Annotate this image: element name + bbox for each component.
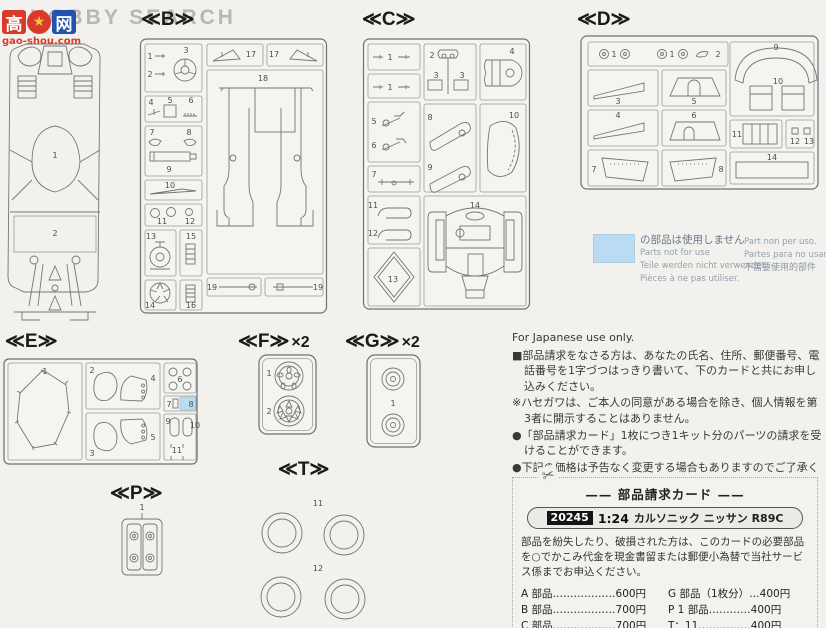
sprue-e-diagram: 1 2 4 3 5 6 7 8 9 10 11 <box>3 358 199 466</box>
legend-es: Partes para no usar. <box>744 249 826 262</box>
svg-text:19: 19 <box>207 283 217 292</box>
svg-text:6: 6 <box>188 96 193 105</box>
label-f-multiplier: ×2 <box>291 334 309 351</box>
section-label-g: ≪G≫×2 <box>345 330 420 353</box>
svg-text:12: 12 <box>185 217 195 226</box>
svg-text:1: 1 <box>52 151 57 160</box>
section-label-t: ≪T≫ <box>278 458 329 481</box>
svg-text:2: 2 <box>429 51 434 60</box>
svg-text:14: 14 <box>767 153 777 162</box>
svg-text:4: 4 <box>148 98 153 107</box>
svg-text:12: 12 <box>313 564 323 573</box>
sprue-g-diagram: 1 <box>366 354 422 449</box>
svg-text:1: 1 <box>139 503 144 512</box>
svg-text:13: 13 <box>388 275 398 284</box>
section-label-d: ≪D≫ <box>577 8 631 31</box>
notice-paragraph: ●「部品請求カード」1枚につき1キット分のパーツの請求を受けることができます。 <box>512 428 824 459</box>
instruction-sheet-page: HOBBY SEARCH 高 ★ 网 gao-shou.com ≪B≫ ≪C≫ … <box>0 0 826 628</box>
gaoshou-logo: 高 ★ 网 <box>2 10 76 34</box>
svg-text:7: 7 <box>149 128 154 137</box>
svg-text:7: 7 <box>371 170 376 179</box>
card-body-text: 部品を紛失したり、破損された方は、このカードの必要部品を○でかこみ代金を現金書留… <box>521 535 809 581</box>
section-label-c: ≪C≫ <box>362 8 416 31</box>
svg-text:4: 4 <box>615 111 620 120</box>
svg-text:7: 7 <box>591 165 596 174</box>
svg-text:2: 2 <box>266 407 271 416</box>
svg-text:13: 13 <box>146 232 156 241</box>
svg-text:5: 5 <box>167 96 172 105</box>
svg-text:8: 8 <box>427 113 432 122</box>
svg-text:17: 17 <box>269 50 279 59</box>
parts-request-card: ✂ —— 部品請求カード —— 20245 1:24 カルソニック ニッサン R… <box>512 477 818 628</box>
sprue-b-diagram: 1 2 3 4 5 6 7 8 9 10 11 12 13 15 <box>139 36 329 316</box>
svg-text:4: 4 <box>509 47 514 56</box>
svg-text:7: 7 <box>166 400 171 409</box>
sprue-p-diagram: 1 <box>112 500 172 585</box>
svg-text:1: 1 <box>147 52 152 61</box>
svg-text:2: 2 <box>715 50 720 59</box>
svg-text:11: 11 <box>732 130 742 139</box>
svg-text:11: 11 <box>313 499 323 508</box>
svg-text:14: 14 <box>145 301 155 310</box>
svg-text:3: 3 <box>615 97 620 106</box>
svg-text:8: 8 <box>186 128 191 137</box>
svg-text:19: 19 <box>313 283 323 292</box>
svg-text:13: 13 <box>804 137 814 146</box>
card-title: —— 部品請求カード —— <box>521 484 809 503</box>
svg-text:9: 9 <box>166 165 171 174</box>
logo-char-right: 网 <box>52 10 76 34</box>
svg-text:11: 11 <box>368 201 378 210</box>
svg-text:18: 18 <box>258 74 268 83</box>
price-list: A 部品………………600円 G 部品（1枚分）…400円 B 部品………………… <box>521 586 809 628</box>
svg-text:3: 3 <box>459 71 464 80</box>
section-label-b: ≪B≫ <box>141 8 195 31</box>
not-for-use-swatch <box>593 234 635 263</box>
svg-text:9: 9 <box>773 43 778 52</box>
sprue-f-diagram: 1 2 <box>258 354 318 436</box>
svg-text:10: 10 <box>509 111 519 120</box>
svg-text:6: 6 <box>177 375 182 384</box>
svg-text:10: 10 <box>773 77 783 86</box>
svg-text:14: 14 <box>470 201 480 210</box>
svg-text:4: 4 <box>150 374 155 383</box>
svg-text:16: 16 <box>186 301 196 310</box>
price-item: B 部品………………700円 <box>521 602 662 618</box>
parts-request-notice: For Japanese use only. ■部品請求をなさる方は、あなたの氏… <box>512 330 824 492</box>
svg-text:11: 11 <box>157 217 167 226</box>
svg-text:6: 6 <box>371 141 376 150</box>
svg-text:1: 1 <box>266 369 271 378</box>
label-f-text: ≪F≫ <box>238 331 289 352</box>
svg-text:1: 1 <box>387 83 392 92</box>
svg-text:3: 3 <box>433 71 438 80</box>
svg-text:6: 6 <box>691 111 696 120</box>
svg-text:3: 3 <box>89 449 94 458</box>
label-g-multiplier: ×2 <box>402 334 420 351</box>
svg-text:2: 2 <box>89 366 94 375</box>
svg-text:10: 10 <box>190 421 200 430</box>
svg-text:12: 12 <box>368 229 378 238</box>
fist-logo-icon: ★ <box>27 10 51 34</box>
legend-zh: 不需要使用的部件 <box>744 262 826 275</box>
notice-paragraph: ※ハセガワは、ご本人の同意がある場合を除き、個人情報を第3者に開示することはあり… <box>512 395 824 426</box>
price-item: T：11……………400円 <box>668 618 809 628</box>
section-label-f: ≪F≫×2 <box>238 330 310 353</box>
price-item: G 部品（1枚分）…400円 <box>668 586 809 602</box>
svg-text:5: 5 <box>150 433 155 442</box>
svg-text:5: 5 <box>371 117 376 126</box>
label-g-text: ≪G≫ <box>345 331 400 352</box>
svg-text:5: 5 <box>691 97 696 106</box>
svg-text:1: 1 <box>390 399 395 408</box>
product-name: カルソニック ニッサン R89C <box>634 510 784 526</box>
svg-text:10: 10 <box>165 181 175 190</box>
product-number: 20245 <box>547 511 593 525</box>
svg-text:8: 8 <box>188 400 193 409</box>
legend-it: Part non per uso. <box>744 236 826 249</box>
price-item: A 部品………………600円 <box>521 586 662 602</box>
tires-t-diagram: 11 12 <box>252 492 368 622</box>
notice-heading: For Japanese use only. <box>512 330 824 346</box>
svg-text:2: 2 <box>147 70 152 79</box>
section-label-e: ≪E≫ <box>5 330 57 353</box>
price-item: C 部品………………700円 <box>521 618 662 628</box>
sprue-d-diagram: 1 1 2 3 5 4 6 7 8 9 10 11 <box>580 34 820 192</box>
svg-text:8: 8 <box>718 165 723 174</box>
price-item: P 1 部品…………400円 <box>668 602 809 618</box>
svg-text:11: 11 <box>172 446 182 455</box>
svg-text:12: 12 <box>790 137 800 146</box>
logo-char-left: 高 <box>2 10 26 34</box>
svg-text:1: 1 <box>611 50 616 59</box>
svg-text:9: 9 <box>427 163 432 172</box>
legend-right-column: Part non per uso. Partes para no usar. 不… <box>744 236 826 275</box>
svg-text:1: 1 <box>669 50 674 59</box>
sprue-c-diagram: 1 1 2 3 3 4 5 6 7 8 9 10 11 <box>362 36 532 312</box>
svg-text:1: 1 <box>387 53 392 62</box>
sprue-a-diagram: 1 2 <box>2 40 108 332</box>
svg-text:17: 17 <box>246 50 256 59</box>
svg-text:15: 15 <box>186 232 196 241</box>
svg-text:2: 2 <box>52 229 57 238</box>
notice-paragraph: ■部品請求をなさる方は、あなたの氏名、住所、郵便番号、電話番号を1字づつはっきり… <box>512 348 824 395</box>
product-id-pill: 20245 1:24 カルソニック ニッサン R89C <box>527 507 803 529</box>
svg-text:3: 3 <box>183 46 188 55</box>
product-scale: 1:24 <box>598 511 629 526</box>
